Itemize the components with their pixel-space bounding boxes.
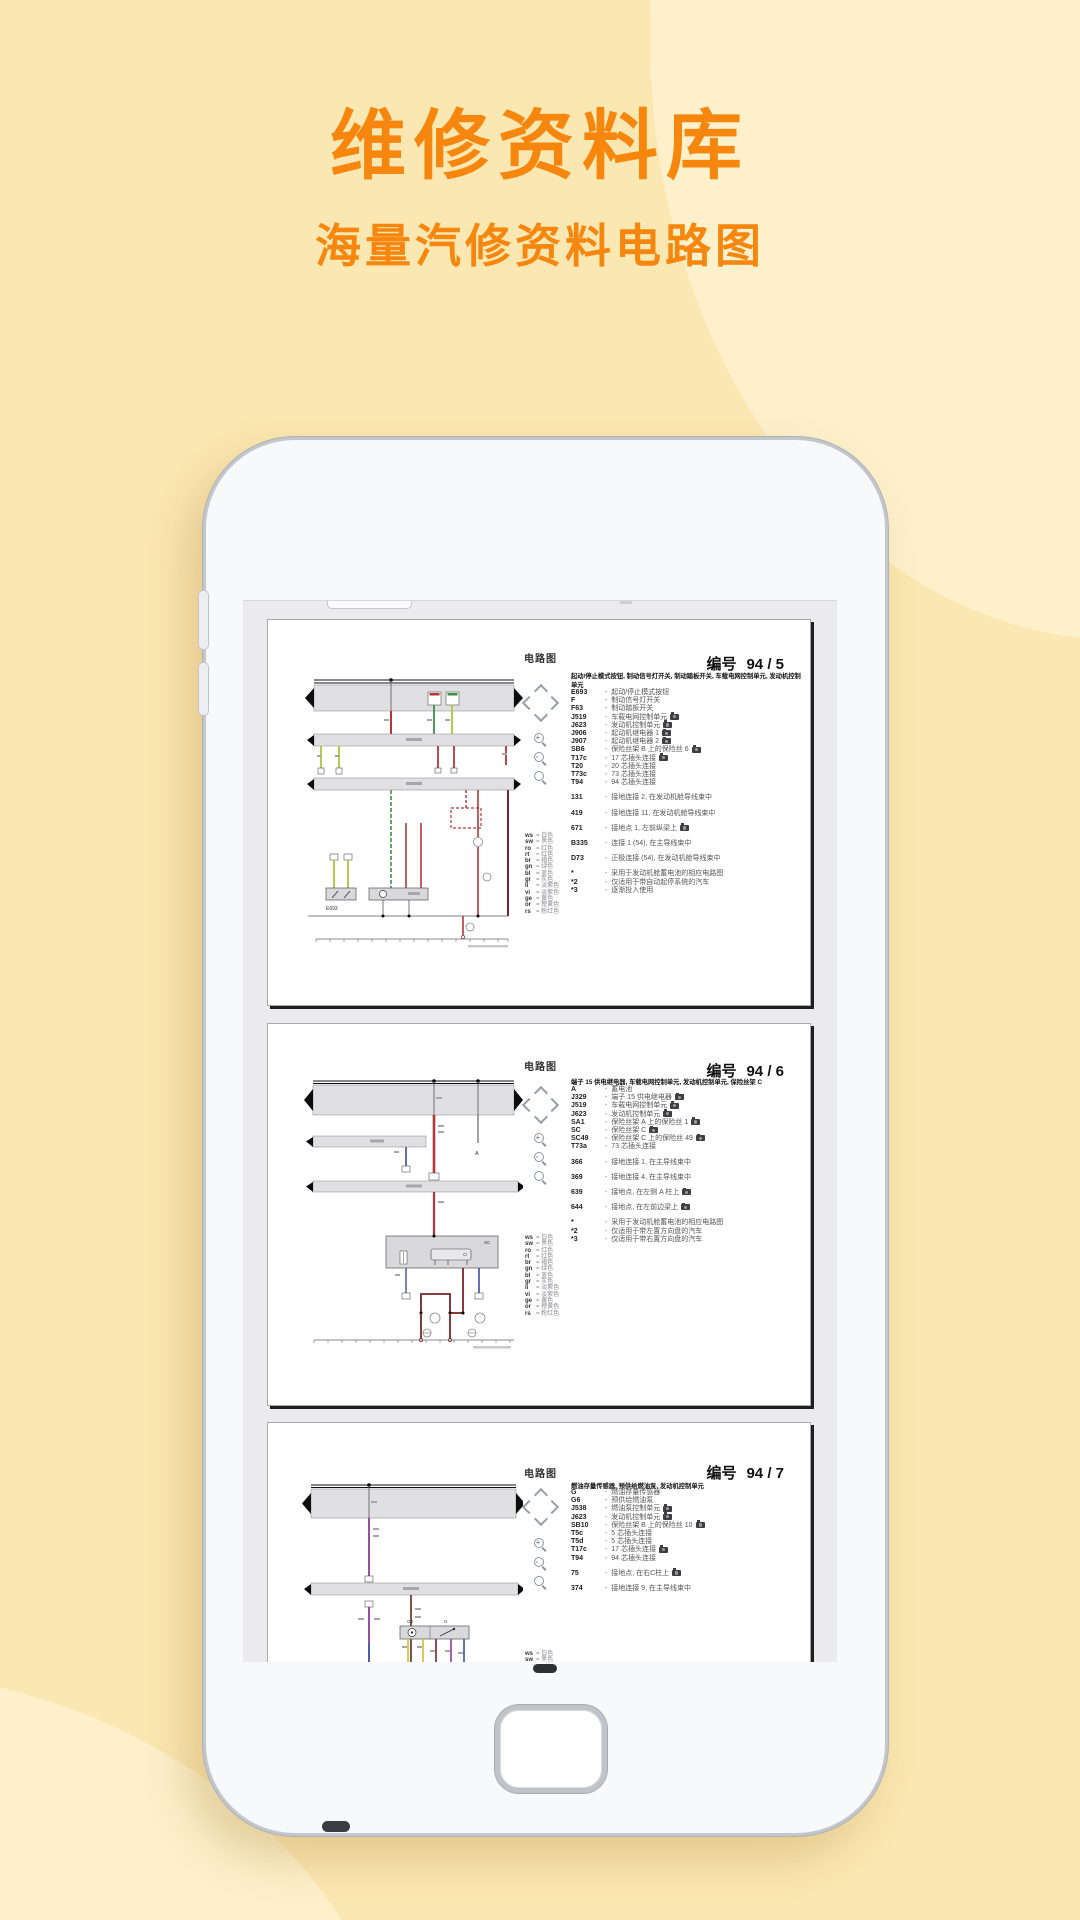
camera-icon[interactable] xyxy=(663,1111,672,1117)
pan-up-icon[interactable] xyxy=(534,684,548,698)
wire-color-legend: ws白色 sw黑色 ro红色 rt红色 br褐色 xyxy=(525,1235,559,1317)
legend-row: SA1 保险丝架 A 上的保险丝 1 xyxy=(571,1119,807,1127)
pan-left-icon[interactable] xyxy=(522,1500,536,1514)
camera-icon[interactable] xyxy=(696,1135,705,1141)
pan-right-icon[interactable] xyxy=(545,1500,559,1514)
legend-row: SB6 保险丝架 B 上的保险丝 6 xyxy=(571,746,807,754)
pan-down-icon[interactable] xyxy=(534,1110,548,1124)
camera-icon[interactable] xyxy=(675,1094,684,1100)
pan-up-icon[interactable] xyxy=(534,1488,548,1502)
zoom-out-icon[interactable] xyxy=(534,1557,547,1570)
zoom-out-icon[interactable] xyxy=(534,752,547,765)
camera-icon[interactable] xyxy=(670,1103,679,1109)
legend-row: D73 正极连接 (54), 在发动机舱导线束中 xyxy=(571,855,807,863)
legend-row: *2 仅适用于带左置方向盘的汽车 xyxy=(571,1228,807,1236)
legend-list: G 燃油存量传感器 G6 预供给燃油泵 J538 燃油泵控制单元 J6 xyxy=(571,1489,807,1593)
page-title: 维修资料库 xyxy=(0,84,1080,194)
page-number: 编号94 / 7 xyxy=(706,1462,784,1483)
legend-row: 419 接地连接 11, 在发动机舱导线束中 xyxy=(571,810,807,818)
pan-down-icon[interactable] xyxy=(534,708,548,722)
wiring-diagram: A SC xyxy=(288,1069,523,1359)
camera-icon[interactable] xyxy=(691,1119,700,1125)
diagram-type-label: 电路图 xyxy=(524,1465,557,1480)
camera-icon[interactable] xyxy=(662,730,671,736)
page-subtitle: 海量汽修资料电路图 xyxy=(0,210,1080,276)
component-label: E693 xyxy=(326,906,338,912)
diagram-page-94-5[interactable]: E693 电路图 编号94 / 5 xyxy=(267,619,811,1006)
pan-control[interactable] xyxy=(524,685,556,721)
legend-row: J623 发动机控制单元 xyxy=(571,1111,807,1119)
camera-icon[interactable] xyxy=(663,1506,672,1512)
camera-icon[interactable] xyxy=(662,738,671,744)
camera-icon[interactable] xyxy=(672,1570,681,1576)
camera-icon[interactable] xyxy=(659,755,668,761)
wiring-diagram: E693 xyxy=(288,665,523,955)
zoom-in-icon[interactable] xyxy=(534,1133,547,1146)
legend-row: J519 车载电网控制单元 xyxy=(571,714,807,722)
phone-mockup: E693 电路图 编号94 / 5 xyxy=(203,437,888,1836)
legend-row: B335 连接 1 (54), 在主导线束中 xyxy=(571,840,807,848)
legend-row: 366 接地连接 1, 在主导线束中 xyxy=(571,1159,807,1167)
color-row: rs粉红色 xyxy=(525,909,559,915)
pan-control[interactable] xyxy=(524,1087,556,1123)
legend-row: J623 发动机控制单元 xyxy=(571,722,807,730)
legend-row: *3 逐渐投入使用 xyxy=(571,887,807,895)
pan-left-icon[interactable] xyxy=(522,696,536,710)
legend-row: T94 94 芯插头连接 xyxy=(571,1555,807,1563)
camera-icon[interactable] xyxy=(663,722,672,728)
legend-row: J623 发动机控制单元 xyxy=(571,1514,807,1522)
zoom-reset-icon[interactable] xyxy=(534,771,547,784)
battery-wire-label: A xyxy=(475,1151,479,1157)
legend-row: A 蓄电池 xyxy=(571,1086,807,1094)
legend-row: T5c 5 芯插头连接 xyxy=(571,1530,807,1538)
legend-row: 671 接地点 1, 左前纵梁上 xyxy=(571,825,807,833)
zoom-reset-icon[interactable] xyxy=(534,1171,547,1184)
fusebox-label: SC xyxy=(484,1240,491,1245)
wire-color-legend: ws白色 sw黑色 ro红色 rt红色 br褐色 xyxy=(525,833,559,915)
legend-row: 369 接地连接 4, 在主导线束中 xyxy=(571,1174,807,1182)
legend-row: T17c 17 芯插头连接 xyxy=(571,1546,807,1554)
zoom-in-icon[interactable] xyxy=(534,733,547,746)
camera-icon[interactable] xyxy=(659,1547,668,1553)
zoom-out-icon[interactable] xyxy=(534,1152,547,1165)
pdf-viewer[interactable]: E693 电路图 编号94 / 5 xyxy=(243,600,837,1662)
legend-row: * 采用于发动机舱蓄电池的相应电路图 xyxy=(571,1219,807,1227)
pump-label: G6 xyxy=(407,1619,414,1624)
legend-row: T73c 73 芯插头连接 xyxy=(571,771,807,779)
zoom-tools[interactable] xyxy=(534,733,550,790)
legend-row: 75 接地点, 在右C柱上 xyxy=(571,1570,807,1578)
zoom-reset-icon[interactable] xyxy=(534,1576,547,1589)
legend-row: T20 20 芯插头连接 xyxy=(571,763,807,771)
page-number: 编号94 / 6 xyxy=(706,1060,784,1081)
charging-port xyxy=(322,1821,350,1832)
pan-up-icon[interactable] xyxy=(534,1086,548,1100)
camera-icon[interactable] xyxy=(681,1204,690,1210)
volume-up-button xyxy=(198,590,209,650)
camera-icon[interactable] xyxy=(682,1189,691,1195)
legend-list: E693 起动/停止模式按钮 F 制动信号灯开关 F63 制动踏板开关 xyxy=(571,689,807,895)
front-camera-slot xyxy=(620,601,632,604)
diagram-page-94-7[interactable]: G6 G 电路图 编号94 / 7 xyxy=(267,1422,811,1662)
color-row: sw黑色 xyxy=(525,1657,553,1662)
home-button[interactable] xyxy=(495,1705,607,1793)
legend-row: 374 接地连接 9, 在主导线束中 xyxy=(571,1585,807,1593)
legend-row: * 采用于发动机舱蓄电池的相应电路图 xyxy=(571,870,807,878)
pan-down-icon[interactable] xyxy=(534,1512,548,1526)
legend-row: 131 接地连接 2, 在发动机舱导线束中 xyxy=(571,794,807,802)
legend-row: 639 接地点, 在左侧 A 柱上 xyxy=(571,1189,807,1197)
pan-left-icon[interactable] xyxy=(522,1098,536,1112)
wire-color-legend: ws白色 sw黑色 xyxy=(525,1651,553,1662)
legend-row: J538 燃油泵控制单元 xyxy=(571,1505,807,1513)
zoom-tools[interactable] xyxy=(534,1133,550,1190)
camera-icon[interactable] xyxy=(696,1522,705,1528)
camera-icon[interactable] xyxy=(680,825,689,831)
sensor-label: G xyxy=(444,1619,448,1624)
legend-row: E693 起动/停止模式按钮 xyxy=(571,689,807,697)
diagram-page-94-6[interactable]: A SC xyxy=(267,1023,811,1406)
legend-row: G 燃油存量传感器 xyxy=(571,1489,807,1497)
legend-row: SB10 保险丝架 B 上的保险丝 10 xyxy=(571,1522,807,1530)
pan-right-icon[interactable] xyxy=(545,1098,559,1112)
pan-right-icon[interactable] xyxy=(545,696,559,710)
legend-row: T17c 17 芯插头连接 xyxy=(571,755,807,763)
legend-list: A 蓄电池 J329 端子 15 供电继电器 J519 车载电网控制单元 xyxy=(571,1086,807,1244)
zoom-tools[interactable] xyxy=(534,1538,550,1595)
zoom-in-icon[interactable] xyxy=(534,1538,547,1551)
camera-icon[interactable] xyxy=(649,1127,658,1133)
camera-icon[interactable] xyxy=(692,747,701,753)
camera-icon[interactable] xyxy=(670,714,679,720)
legend-row: J906 起动机继电器 1 xyxy=(571,730,807,738)
legend-row: T73a 73 芯插头连接 xyxy=(571,1143,807,1151)
color-row: rs粉红色 xyxy=(525,1311,559,1317)
camera-icon[interactable] xyxy=(663,1514,672,1520)
diagram-type-label: 电路图 xyxy=(524,1058,557,1073)
fingerprint-slot xyxy=(533,1664,557,1673)
pan-control[interactable] xyxy=(524,1489,556,1525)
legend-row: *2 仅适用于带自动起停系统的汽车 xyxy=(571,879,807,887)
legend-row: T94 94 芯插头连接 xyxy=(571,779,807,787)
wiring-diagram: G6 G xyxy=(288,1468,523,1662)
drag-handle[interactable] xyxy=(327,600,412,609)
legend-row: *3 仅适用于带右置方向盘的汽车 xyxy=(571,1236,807,1244)
volume-down-button xyxy=(198,662,209,716)
legend-row: J519 车载电网控制单元 xyxy=(571,1102,807,1110)
page-number: 编号94 / 5 xyxy=(706,653,784,674)
diagram-type-label: 电路图 xyxy=(524,650,557,665)
legend-row: SC 保险丝架 C xyxy=(571,1127,807,1135)
legend-row: 644 接地点, 在左前边梁上 xyxy=(571,1204,807,1212)
diagram-title: 起动/停止模式按钮, 制动信号灯开关, 制动踏板开关, 车载电网控制单元, 发动… xyxy=(571,673,805,690)
legend-row: F63 制动踏板开关 xyxy=(571,705,807,713)
